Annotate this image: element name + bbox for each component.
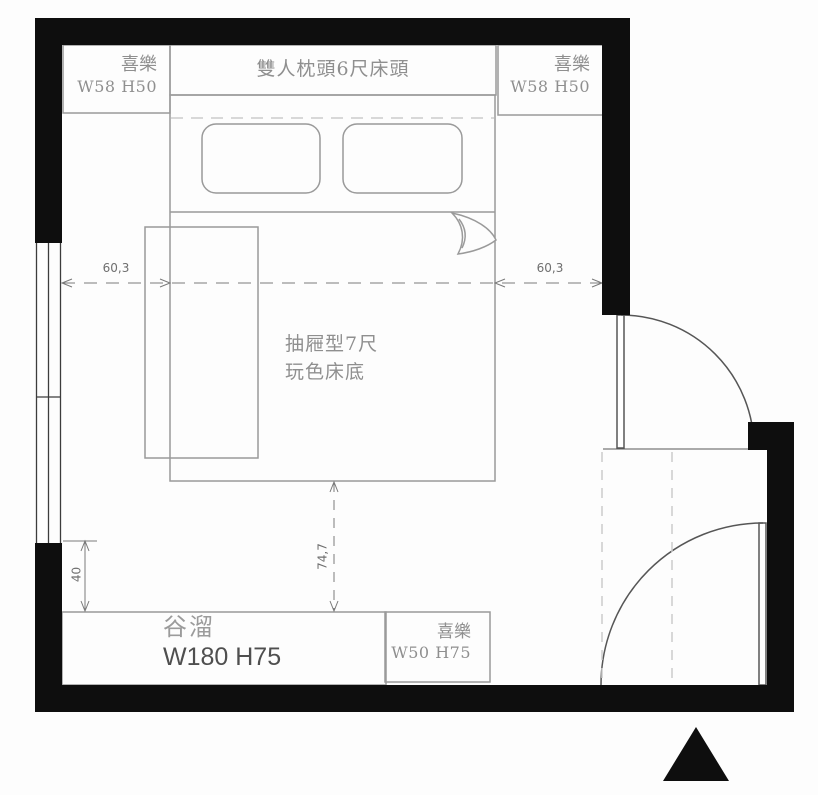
pillow-left-outline — [202, 124, 320, 193]
vestibule-dashed-lines — [602, 452, 672, 683]
nightstand-bottom-right-label: 喜樂 W50 H75 — [381, 622, 481, 663]
nightstand-top-right-size: W58 H50 — [498, 77, 590, 97]
dim-label-wall-to-desk: 40 — [70, 559, 85, 591]
wall-door-stub — [748, 422, 794, 450]
side-cabinet-outline — [145, 227, 258, 458]
door-swing-arc-lower — [601, 523, 763, 685]
nightstand-top-right-name: 喜樂 — [498, 54, 590, 77]
door-leaf-upper — [617, 315, 624, 448]
dimension-lines — [62, 279, 602, 611]
nightstand-top-left-name: 喜樂 — [63, 54, 157, 77]
doors — [601, 315, 766, 685]
pillow-right-outline — [343, 124, 462, 193]
dim-label-bed-to-desk: 74,7 — [316, 535, 331, 579]
mattress-outline — [170, 95, 495, 481]
floor-plan-linework — [0, 0, 818, 795]
bed-base-label-line2: 玩色床底 — [285, 358, 378, 386]
door-swing-arc-upper — [621, 315, 754, 448]
wall-top — [35, 18, 630, 45]
desk-size: W180 H75 — [163, 642, 281, 673]
north-arrow-icon — [663, 727, 729, 781]
nightstand-bottom-right-size: W50 H75 — [381, 643, 471, 663]
window-left-wall — [36, 243, 61, 543]
bed-base-label: 抽屜型7尺 玩色床底 — [285, 330, 378, 386]
wall-bottom — [35, 685, 794, 712]
floor-plan: 喜樂 W58 H50 雙人枕頭6尺床頭 喜樂 W58 H50 抽屜型7尺 玩色床… — [0, 0, 818, 795]
nightstand-bottom-right-name: 喜樂 — [381, 622, 471, 643]
sheet-curl — [452, 213, 496, 254]
nightstand-top-left-size: W58 H50 — [63, 77, 157, 97]
bed-base-label-line1: 抽屜型7尺 — [285, 330, 378, 358]
wall-left-upper — [35, 18, 62, 243]
dim-label-right-gap: 60,3 — [524, 261, 576, 276]
wall-right-upper — [602, 18, 630, 315]
headboard-label: 雙人枕頭6尺床頭 — [170, 58, 496, 82]
desk-label: 谷溜 W180 H75 — [163, 612, 281, 673]
nightstand-top-left-label: 喜樂 W58 H50 — [63, 54, 157, 97]
walls — [35, 18, 794, 712]
dim-label-left-gap: 60,3 — [90, 261, 142, 276]
door-leaf-lower — [759, 523, 766, 685]
wall-right-lower — [767, 450, 794, 712]
desk-name: 谷溜 — [163, 612, 281, 642]
nightstand-top-right-label: 喜樂 W58 H50 — [498, 54, 590, 97]
